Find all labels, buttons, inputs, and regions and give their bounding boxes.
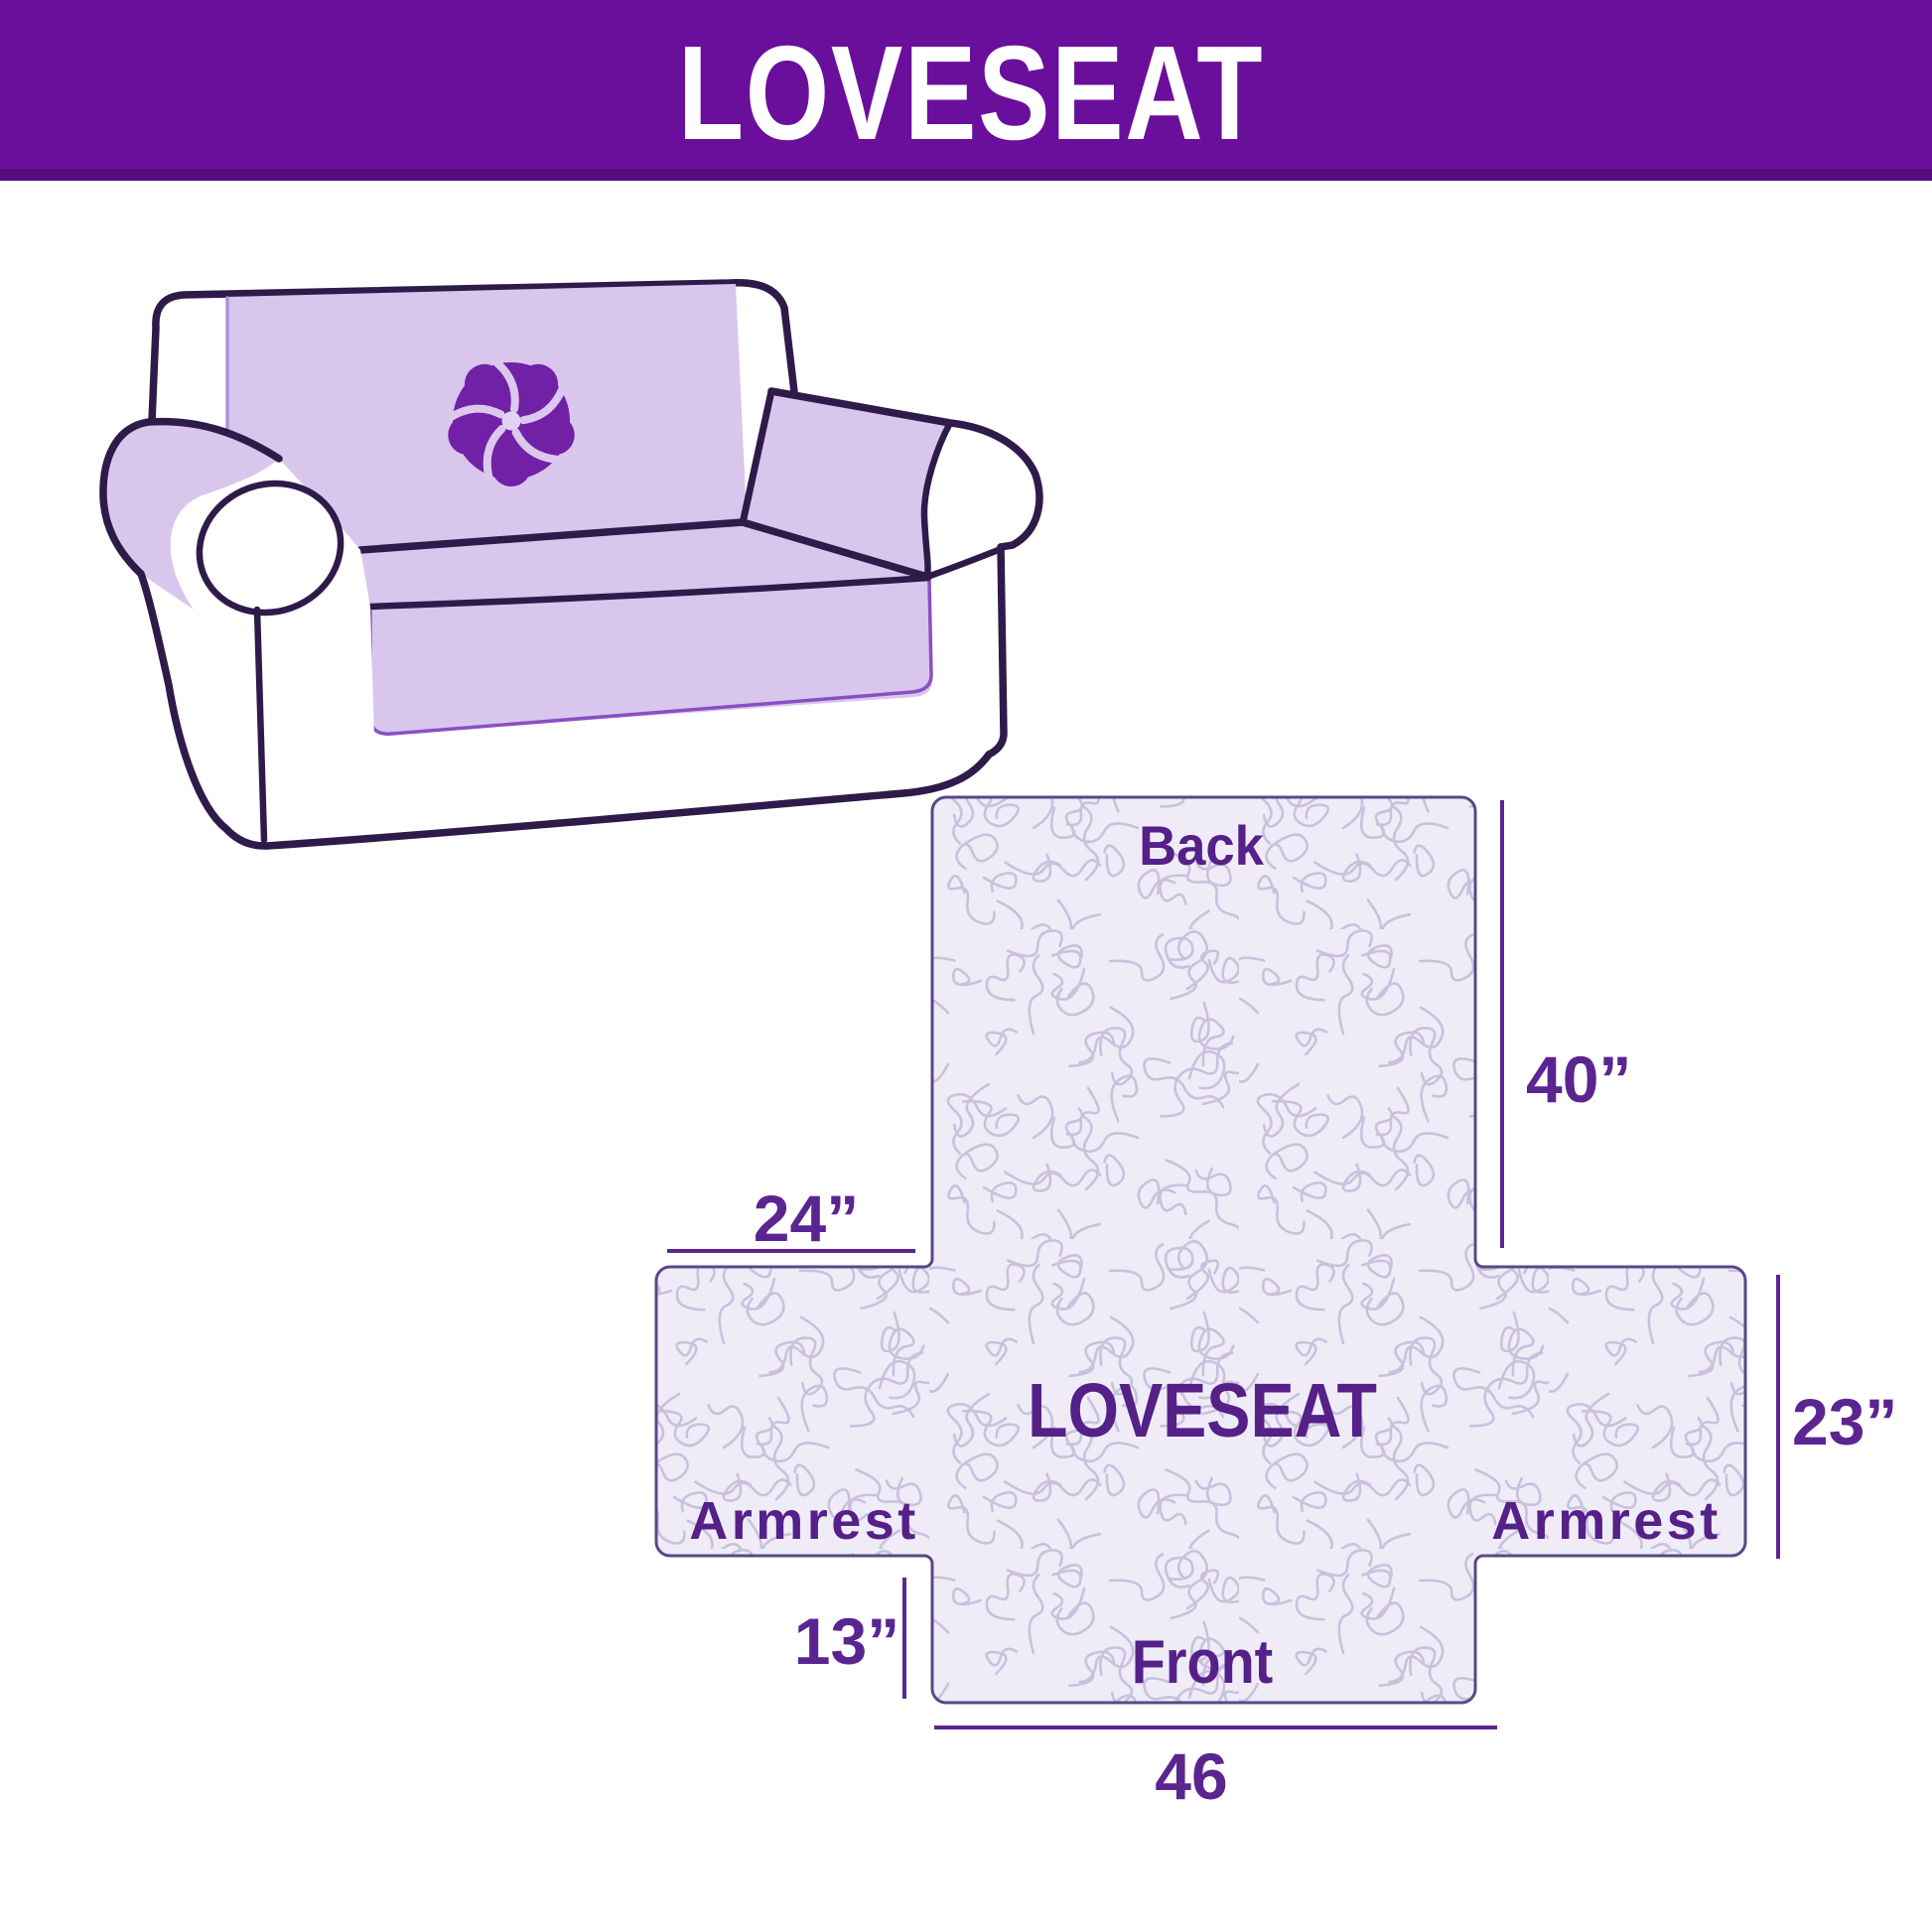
svg-text:Front: Front — [1132, 1628, 1274, 1696]
svg-text:LOVESEAT: LOVESEAT — [678, 18, 1264, 168]
svg-text:40”: 40” — [1526, 1042, 1631, 1116]
svg-text:46: 46 — [1155, 1739, 1227, 1813]
svg-text:LOVESEAT: LOVESEAT — [1028, 1368, 1377, 1453]
svg-text:24”: 24” — [754, 1181, 859, 1255]
svg-text:Armrest: Armrest — [689, 1491, 919, 1551]
svg-text:Armrest: Armrest — [1491, 1491, 1722, 1551]
svg-text:13”: 13” — [794, 1604, 899, 1678]
svg-text:23”: 23” — [1792, 1385, 1897, 1458]
svg-text:Back: Back — [1139, 815, 1265, 878]
